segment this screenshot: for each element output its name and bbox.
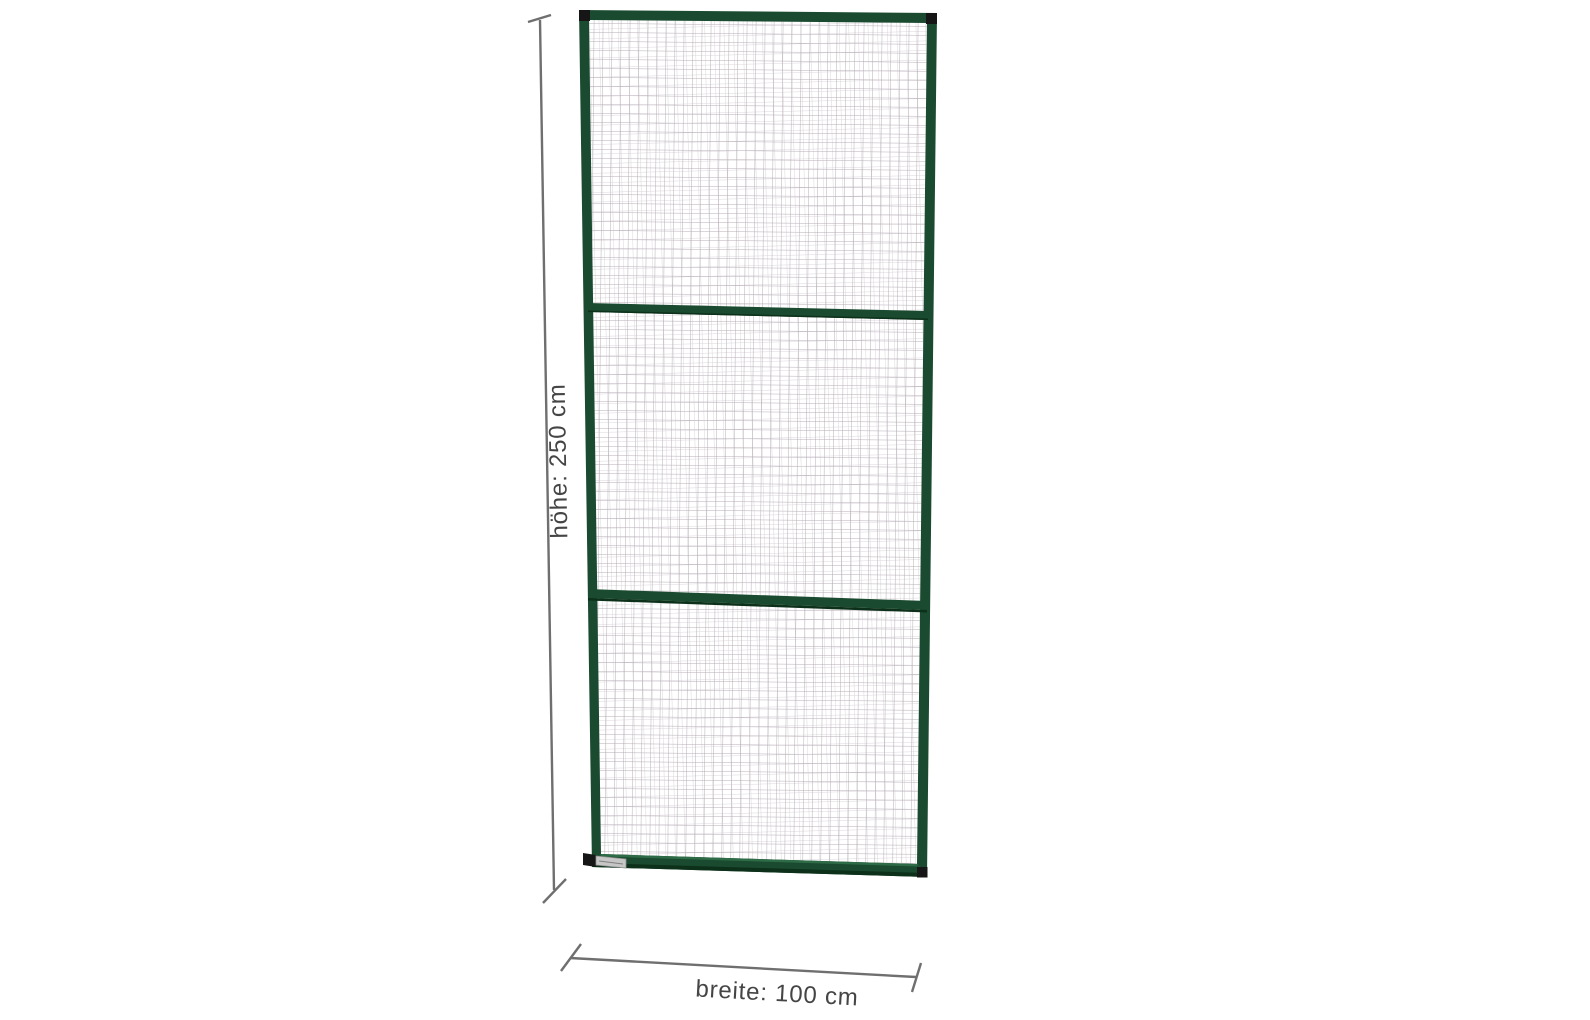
mesh-panel-drawing <box>0 0 1590 1020</box>
corner-cap-top-right <box>926 13 937 24</box>
product-drawing-canvas: höhe: 250 cm breite: 100 cm <box>0 0 1590 1020</box>
height-dimension-label: höhe: 250 cm <box>544 383 575 538</box>
corner-cap-top-left <box>579 10 590 21</box>
wire-mesh <box>555 0 965 900</box>
corner-cap-bottom-right <box>917 867 928 878</box>
corner-cap-bottom-left <box>583 853 596 867</box>
wire-mesh-front-layer <box>555 0 965 900</box>
width-dimension-shaft <box>570 958 916 977</box>
